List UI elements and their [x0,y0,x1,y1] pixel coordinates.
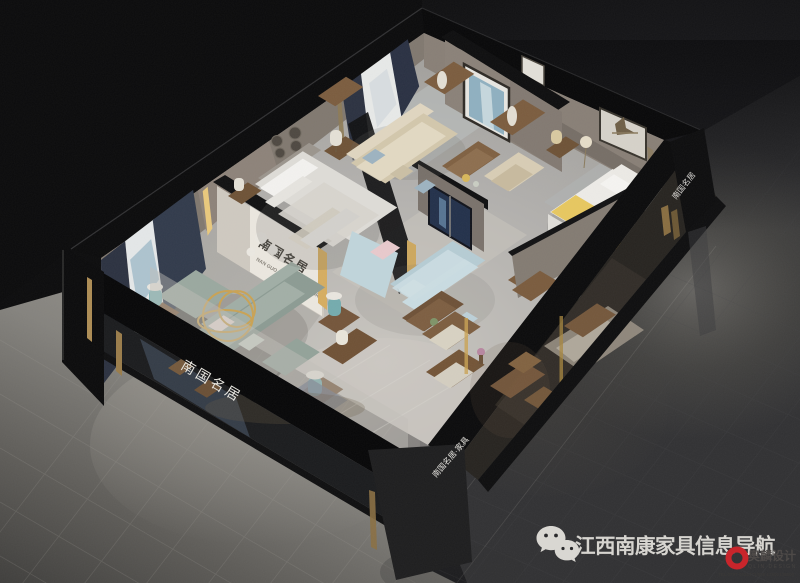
svg-text:TEL:0797-6625471/888 13800138: TEL:0797-6625471/888 13800138800 [718,572,795,577]
svg-text:QLIN DESIGN: QLIN DESIGN [748,564,797,570]
svg-text:奥麟设计: 奥麟设计 [748,548,796,563]
